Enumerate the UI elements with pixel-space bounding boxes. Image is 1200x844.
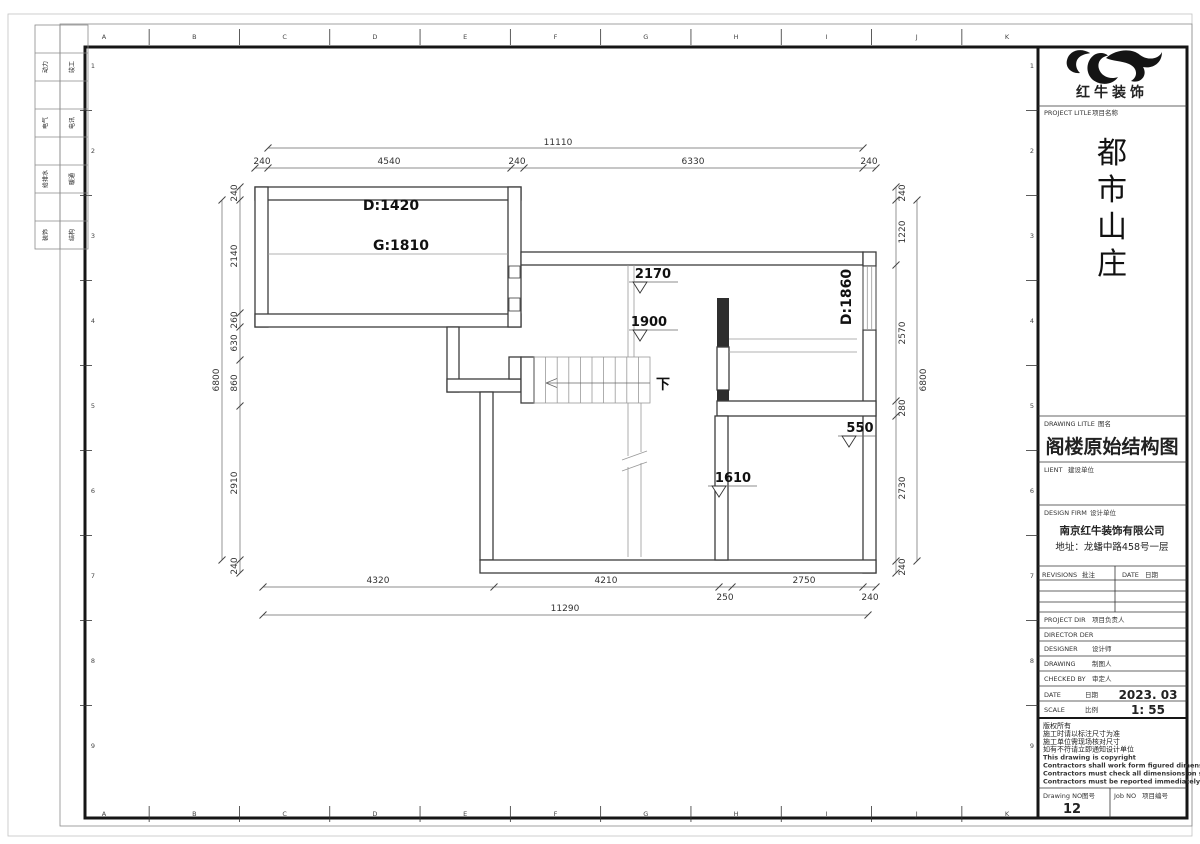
row-date-en: DATE <box>1044 691 1061 699</box>
grid-letter-bottom: G <box>643 810 648 818</box>
wall-roomA-bottom <box>255 314 521 327</box>
room-label-g1810: G:1810 <box>373 238 429 254</box>
firm-address: 地址：龙蟠中路458号一层 <box>1055 541 1168 553</box>
grid-letter-top: I <box>825 33 827 41</box>
row-project-dir-cn: 项目负责人 <box>1092 615 1125 624</box>
grid-letter-top: J <box>915 33 918 41</box>
staircase <box>534 265 650 557</box>
job-no-label-en: Job NO <box>1113 792 1136 800</box>
signoff-cell: 暖通 <box>68 173 76 185</box>
client-label-en: LIENT <box>1044 466 1063 474</box>
dim-label: 2570 <box>898 321 908 344</box>
elevation-marker-2170: 2170 <box>629 267 678 293</box>
project-name-char: 山 <box>1097 210 1127 245</box>
grid-letter-bottom: D <box>372 810 377 818</box>
revisions-label-cn: 批注 <box>1082 570 1096 579</box>
wall-roomA-left <box>255 187 268 327</box>
project-label-en: PROJECT LITLE <box>1044 109 1091 117</box>
revisions-date-col-cn: 日期 <box>1145 571 1159 579</box>
project-name-char: 市 <box>1097 173 1127 208</box>
copyright-line: This drawing is copyright <box>1043 754 1136 762</box>
grid-letter-top: D <box>372 33 377 41</box>
dim-label: 240 <box>230 184 240 201</box>
drawing-no-value: 12 <box>1063 802 1081 817</box>
copyright-line: Contractors must check all dimensions on… <box>1043 769 1200 777</box>
copyright-line: Contractors must be reported immediately… <box>1043 777 1200 785</box>
dim-label: 260 <box>230 311 240 328</box>
grid-letter-bottom: I <box>825 810 827 818</box>
svg-text:2170: 2170 <box>635 267 671 282</box>
floor-plan: 下 D:1420 G:1810 D:1860 2170 1900 550 161… <box>212 138 929 619</box>
dim-label: 2140 <box>230 244 240 267</box>
row-date-cn: 日期 <box>1085 691 1099 699</box>
copyright-line: Contractors shall work form figured dime… <box>1043 762 1200 770</box>
wall-notch-lower <box>509 298 520 311</box>
dim-label: 240 <box>898 558 908 575</box>
scale-value: 1: 55 <box>1131 703 1165 717</box>
stair-down-label: 下 <box>656 377 670 393</box>
dim-label: 240 <box>230 557 240 574</box>
dim-label: 240 <box>253 157 270 167</box>
revisions-date-col-en: DATE <box>1122 571 1139 579</box>
dim-label: 4540 <box>378 157 401 167</box>
row-checked-en: CHECKED BY <box>1044 675 1086 683</box>
wall-right-exterior <box>863 330 876 573</box>
grid-letter-top: F <box>554 33 558 41</box>
elevation-marker-1900: 1900 <box>629 315 678 341</box>
grid-letter-bottom: E <box>463 810 467 818</box>
signoff-cell: 结构 <box>68 229 76 241</box>
signoff-cell: 给排水 <box>42 170 50 188</box>
dim-label: 240 <box>860 157 877 167</box>
grid-letter-top: B <box>192 33 196 41</box>
dim-label: 240 <box>508 157 525 167</box>
grid-number-left: 6 <box>91 487 95 495</box>
dim-label: 6800 <box>212 368 222 391</box>
wall-right-stub <box>863 252 876 266</box>
grid-letter-bottom: H <box>734 810 739 818</box>
row-checked-cn: 审定人 <box>1092 674 1112 683</box>
signoff-cell: 竣工 <box>68 61 76 73</box>
row-drawing-en: DRAWING <box>1044 660 1076 668</box>
dim-label: 4210 <box>595 576 618 586</box>
drawing-no-label-en: Drawing NO <box>1043 792 1082 800</box>
grid-letter-bottom: B <box>192 810 196 818</box>
grid-number-right: 4 <box>1030 317 1034 325</box>
wall-stair-landing <box>521 357 534 403</box>
wall-bath-left-upper <box>717 298 729 347</box>
grid-number-left: 2 <box>91 147 95 155</box>
grid-letter-top: K <box>1005 33 1010 41</box>
dim-label: 250 <box>716 593 733 603</box>
firm-label-en: DESIGN FIRM <box>1044 509 1087 517</box>
dim-label: 1220 <box>898 220 908 243</box>
dim-label: 2730 <box>898 476 908 499</box>
dimension-lines <box>222 148 917 615</box>
copyright-line: 如有不符请立即通知设计单位 <box>1043 745 1134 754</box>
row-designer-en: DESIGNER <box>1044 645 1078 653</box>
dim-label: 6800 <box>919 368 929 391</box>
wall-alcove-bottom <box>447 379 521 392</box>
project-label-cn: 项目名称 <box>1092 108 1119 117</box>
title-block: 红牛装饰 PROJECT LITLE 项目名称 都市山庄 DRAWING LIT… <box>1038 50 1200 818</box>
dim-label: 6330 <box>682 157 705 167</box>
grid-number-right: 2 <box>1030 147 1034 155</box>
grid-letter-top: E <box>463 33 467 41</box>
drawing-title: 阁楼原始结构图 <box>1045 435 1178 458</box>
row-scale-en: SCALE <box>1044 706 1065 714</box>
firm-label-cn: 设计单位 <box>1090 508 1117 517</box>
drawing-title-label-en: DRAWING LITLE <box>1044 420 1095 428</box>
dim-label: 2750 <box>793 576 816 586</box>
dim-label: 630 <box>230 334 240 351</box>
dim-label: 4320 <box>367 576 390 586</box>
dimension-labels: 1111024045402406330240432042102750250240… <box>212 138 929 614</box>
redbull-logo-icon <box>1067 50 1162 84</box>
job-no-label-cn: 项目编号 <box>1142 791 1169 800</box>
signoff-cell: 装饰 <box>42 229 50 241</box>
wall-alcove-right <box>509 357 521 379</box>
row-designer-cn: 设计师 <box>1092 644 1112 653</box>
copyright-line: 施工单位需现场核对尺寸 <box>1043 737 1120 746</box>
window-label-d1860: D:1860 <box>839 269 855 325</box>
grid-letter-top: A <box>102 33 107 41</box>
dim-label: 2910 <box>230 471 240 494</box>
drawing-sheet: AABBCCDDEEFFGGHHIIJJKK112233445566778899… <box>0 0 1200 844</box>
dim-label: 11110 <box>544 138 573 148</box>
drawing-frame <box>85 47 1187 818</box>
drawing-no-label-cn: 图号 <box>1082 792 1096 800</box>
project-name-char: 都 <box>1097 136 1127 171</box>
client-label-cn: 建设单位 <box>1068 465 1095 474</box>
signoff-cell: 动力 <box>42 61 50 73</box>
grid-letter-top: G <box>643 33 648 41</box>
grid-number-right: 6 <box>1030 487 1034 495</box>
dim-label: 240 <box>861 593 878 603</box>
grid-number-right: 8 <box>1030 657 1034 665</box>
grid-letter-top: C <box>282 33 287 41</box>
discipline-signoff-table: 动力竣工电气电讯给排水暖通装饰结构 <box>35 25 88 249</box>
grid-number-left: 9 <box>91 742 95 750</box>
grid-number-left: 1 <box>91 62 95 70</box>
grid-number-right: 3 <box>1030 232 1034 240</box>
grid-number-left: 7 <box>91 572 95 580</box>
wall-bath-bottom <box>717 401 876 416</box>
row-project-dir-en: PROJECT DIR <box>1044 616 1086 624</box>
project-name-vertical: 都市山庄 <box>1097 136 1127 282</box>
trim-border <box>60 24 1192 826</box>
grid-letter-bottom: J <box>915 810 918 818</box>
dim-label: 240 <box>898 184 908 201</box>
grid-number-left: 8 <box>91 657 95 665</box>
svg-text:1900: 1900 <box>631 315 667 330</box>
room-label-d1420: D:1420 <box>363 198 419 214</box>
row-scale-cn: 比例 <box>1085 705 1098 714</box>
project-name-char: 庄 <box>1097 247 1127 282</box>
date-value: 2023. 03 <box>1119 688 1178 702</box>
grid-number-left: 3 <box>91 232 95 240</box>
row-director-en: DIRECTOR DER <box>1044 631 1094 639</box>
brand-name: 红牛装饰 <box>1076 84 1148 101</box>
dim-label: 280 <box>898 399 908 416</box>
dim-label: 11290 <box>551 604 580 614</box>
window-d1860 <box>863 266 876 330</box>
grid-letter-bottom: A <box>102 810 107 818</box>
wall-bottom-exterior <box>480 560 876 573</box>
grid-letter-bottom: K <box>1005 810 1010 818</box>
cad-canvas: AABBCCDDEEFFGGHHIIJJKK112233445566778899… <box>0 0 1200 844</box>
row-drawing-cn: 制图人 <box>1092 659 1112 668</box>
grid-letter-bottom: C <box>282 810 287 818</box>
dim-label: 860 <box>230 374 240 391</box>
drawing-title-label-cn: 图名 <box>1098 419 1111 428</box>
grid-number-right: 5 <box>1030 402 1034 410</box>
page-edge <box>8 14 1192 836</box>
grid-number-right: 1 <box>1030 62 1034 70</box>
firm-name: 南京红牛装饰有限公司 <box>1060 524 1165 537</box>
signoff-cell: 电讯 <box>68 117 76 129</box>
wall-corridor-top <box>521 252 863 265</box>
wall-notch-upper <box>509 266 520 278</box>
svg-text:1610: 1610 <box>715 471 751 486</box>
grid-letter-bottom: F <box>554 810 558 818</box>
grid-letter-top: H <box>734 33 739 41</box>
grid-number-left: 4 <box>91 317 95 325</box>
revisions-label-en: REVISIONS <box>1042 571 1077 579</box>
grid-number-right: 7 <box>1030 572 1034 580</box>
wall-bath-left-opening <box>717 347 729 390</box>
signoff-cell: 电气 <box>42 117 50 129</box>
copyright-notes: 版权所有施工时请以标注尺寸为准施工单位需现场核对尺寸如有不符请立即通知设计单位T… <box>1043 721 1200 785</box>
copyright-line: 版权所有 <box>1043 721 1071 730</box>
svg-text:550: 550 <box>846 421 873 436</box>
grid-number-left: 5 <box>91 402 95 410</box>
copyright-line: 施工时请以标注尺寸为准 <box>1043 729 1120 738</box>
wall-lowerleft-exterior <box>480 392 493 560</box>
dimension-ticks <box>219 145 921 619</box>
grid-number-right: 9 <box>1030 742 1034 750</box>
